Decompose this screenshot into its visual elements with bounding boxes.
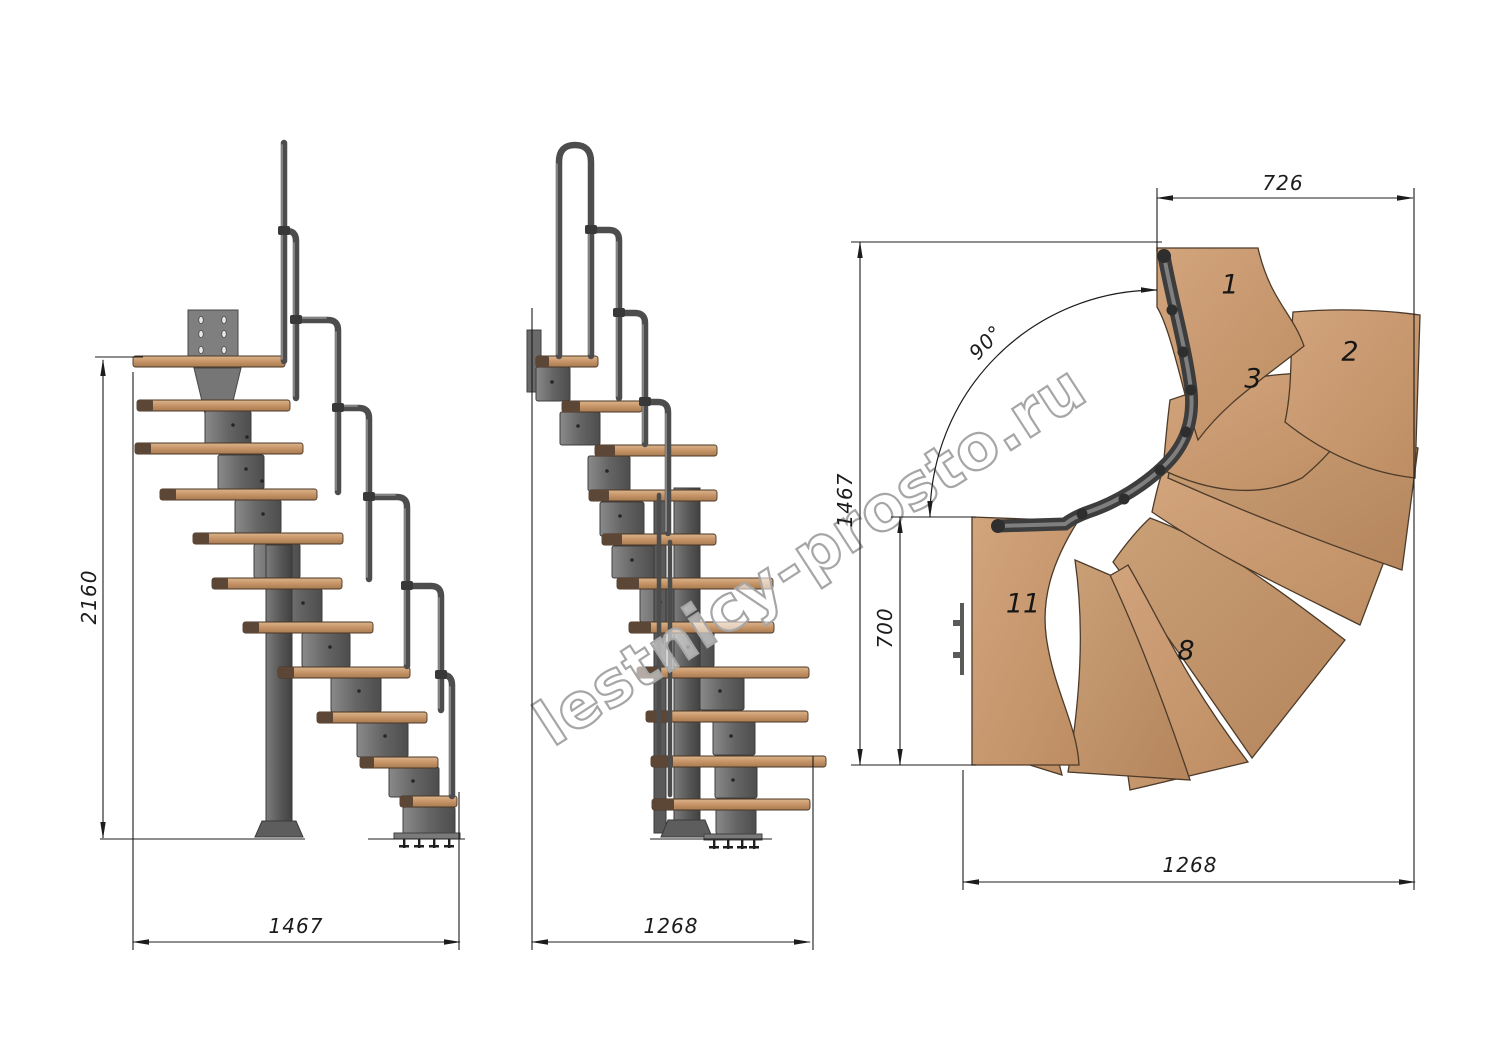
base-plate (394, 833, 460, 839)
wall-bracket (953, 603, 964, 675)
staircase-drawing: 1 2 3 8 11 lestnicy-prosto.ru (0, 0, 1500, 1061)
tread-number-3: 3 (1244, 364, 1261, 395)
anchor-bolts (399, 839, 454, 848)
technical-drawing-page: 1 2 3 8 11 lestnicy-prosto.ru (0, 0, 1500, 1061)
wall-plate (188, 310, 238, 359)
dim-height-a: 2160 (77, 570, 101, 625)
dim-width-b: 1268 (644, 914, 699, 938)
tread-number-2: 2 (1341, 337, 1358, 368)
tread-number-1: 1 (1221, 270, 1238, 301)
plan-view: 1 2 3 8 11 (953, 248, 1420, 790)
dim-plan-top-width: 726 (1262, 171, 1303, 195)
dim-turn-angle: 90° (964, 320, 1008, 364)
column-base (255, 821, 303, 837)
dim-plan-bottom-width: 1268 (1163, 853, 1218, 877)
dim-plan-landing: 700 (873, 607, 897, 648)
side-elevation-a (133, 143, 460, 848)
handrail-loop (559, 145, 591, 356)
dim-width-a: 1467 (269, 914, 324, 938)
tread-number-8: 8 (1177, 636, 1194, 667)
dim-plan-depth: 1467 (833, 473, 857, 528)
tread-number-11: 11 (1006, 589, 1040, 620)
anchor-bolts (709, 840, 759, 849)
